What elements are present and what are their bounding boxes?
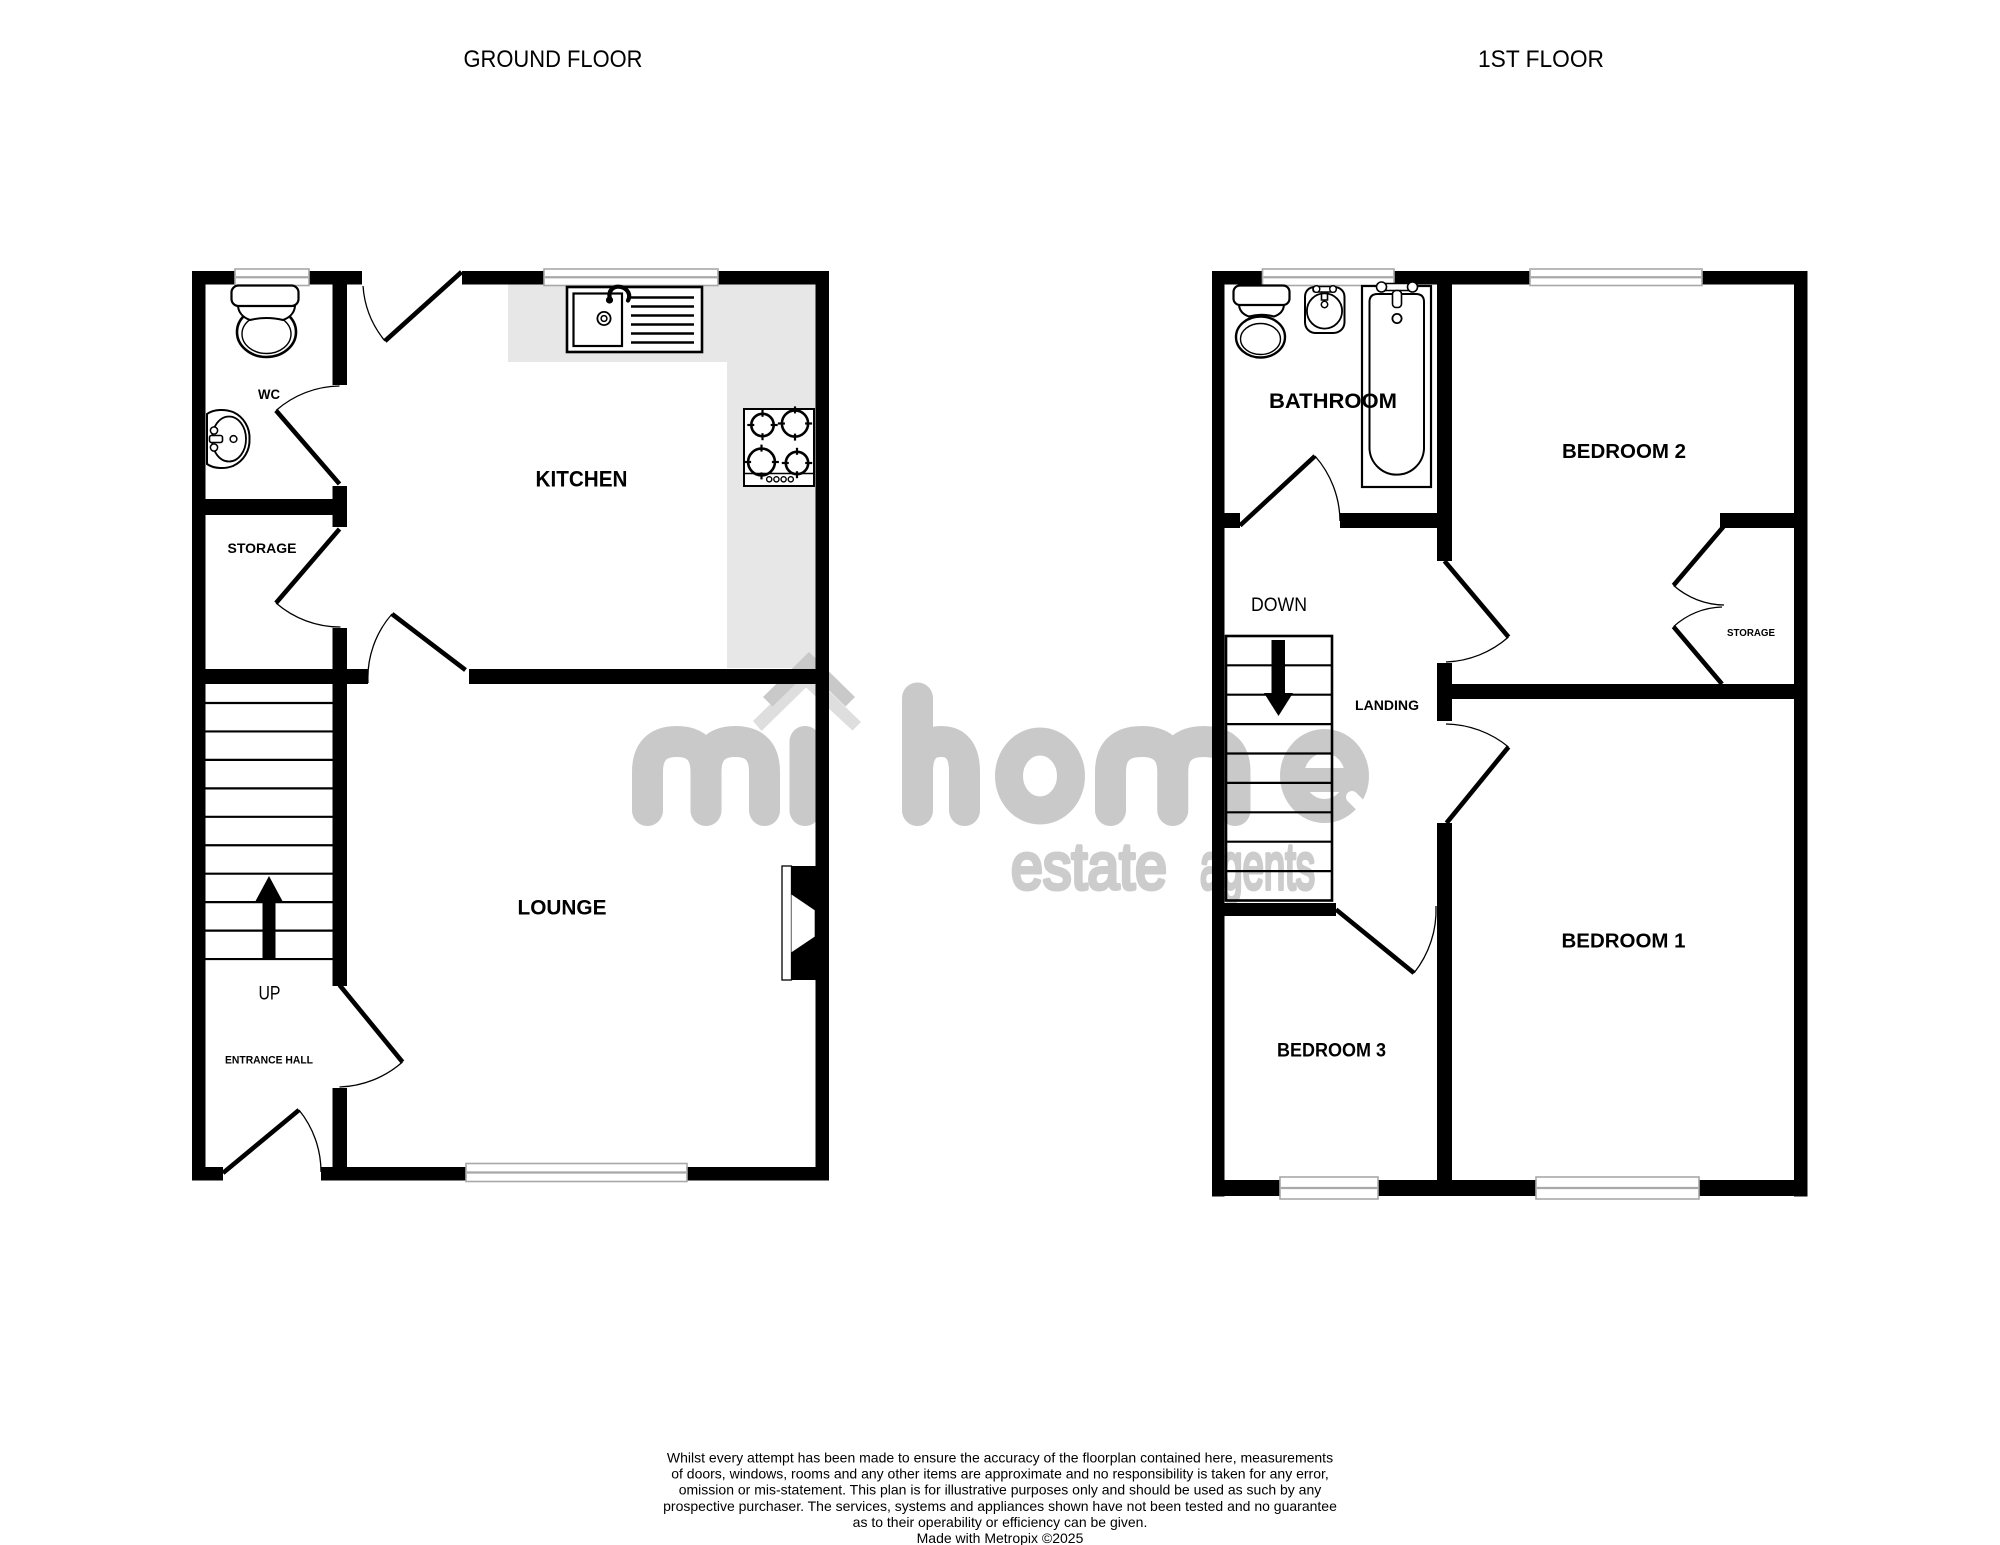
svg-text:STORAGE: STORAGE <box>228 541 297 556</box>
svg-text:ENTRANCE HALL: ENTRANCE HALL <box>225 1055 313 1067</box>
svg-text:KITCHEN: KITCHEN <box>536 467 628 492</box>
svg-text:as to their operability or eff: as to their operability or efficiency ca… <box>853 1514 1148 1530</box>
svg-text:LOUNGE: LOUNGE <box>518 896 607 920</box>
svg-text:GROUND FLOOR: GROUND FLOOR <box>464 46 643 73</box>
svg-text:WC: WC <box>258 387 280 402</box>
svg-text:LANDING: LANDING <box>1355 698 1419 713</box>
svg-text:DOWN: DOWN <box>1251 595 1307 616</box>
svg-text:prospective purchaser. The ser: prospective purchaser. The services, sys… <box>663 1498 1337 1514</box>
svg-text:BEDROOM 1: BEDROOM 1 <box>1562 931 1686 953</box>
svg-text:BATHROOM: BATHROOM <box>1269 389 1397 413</box>
svg-text:of doors, windows, rooms and a: of doors, windows, rooms and any other i… <box>671 1466 1329 1482</box>
svg-text:BEDROOM 2: BEDROOM 2 <box>1562 441 1686 463</box>
svg-text:estate: estate <box>1011 829 1167 903</box>
svg-text:Made with Metropix ©2025: Made with Metropix ©2025 <box>917 1530 1084 1545</box>
svg-text:STORAGE: STORAGE <box>1727 628 1775 639</box>
svg-text:omission or mis-statement. Thi: omission or mis-statement. This plan is … <box>679 1482 1322 1498</box>
svg-text:BEDROOM 3: BEDROOM 3 <box>1277 1041 1386 1062</box>
svg-text:Whilst every attempt has been: Whilst every attempt has been made to en… <box>667 1450 1333 1466</box>
svg-text:1ST FLOOR: 1ST FLOOR <box>1478 46 1604 73</box>
svg-text:UP: UP <box>259 984 281 1005</box>
